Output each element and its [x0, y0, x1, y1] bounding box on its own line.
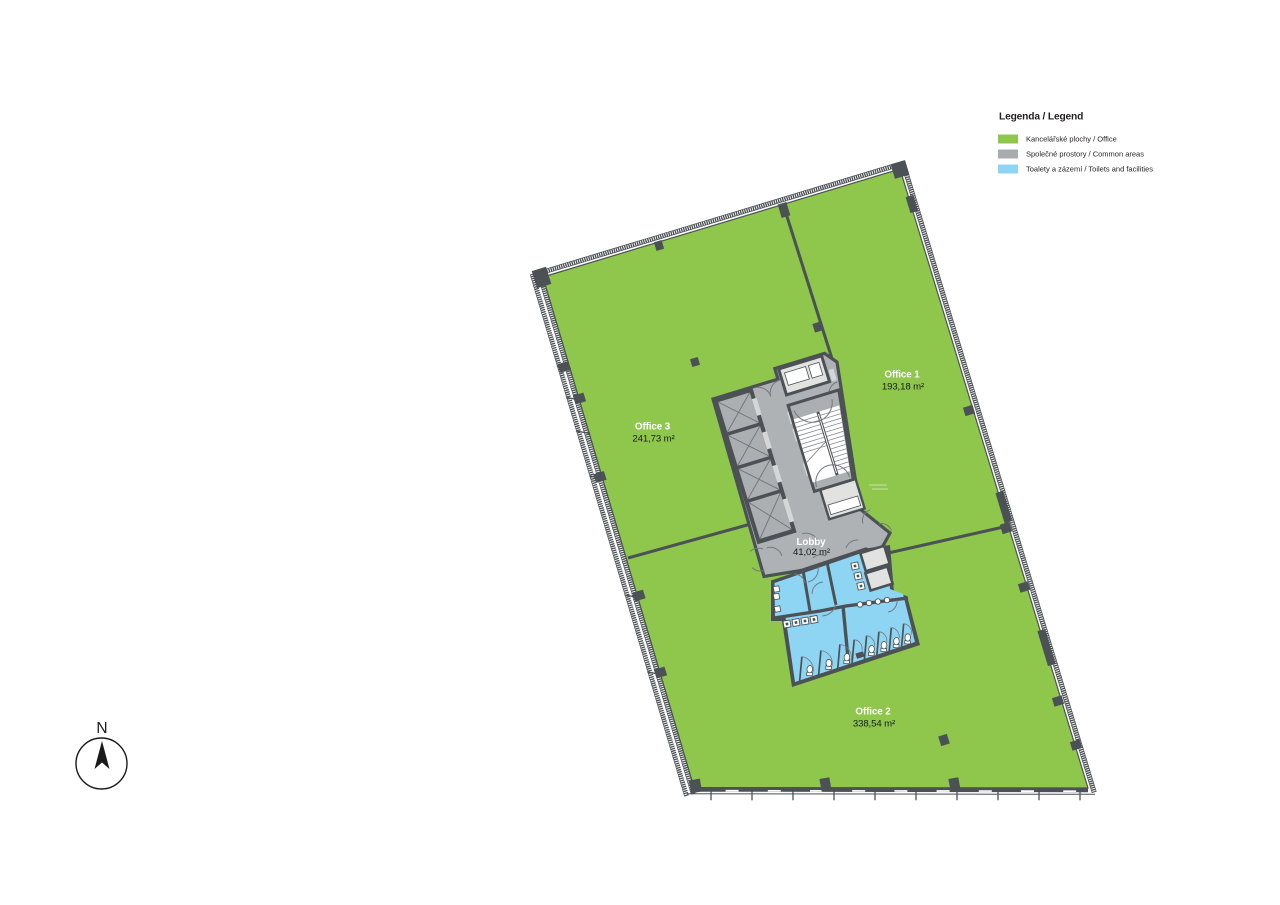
svg-text:41,02 m²: 41,02 m²: [793, 547, 831, 558]
svg-text:Office 1: Office 1: [884, 370, 920, 381]
svg-text:N: N: [96, 720, 107, 737]
svg-text:193,18 m²: 193,18 m²: [882, 382, 925, 393]
svg-text:Legenda / Legend: Legenda / Legend: [999, 112, 1083, 123]
svg-text:241,73 m²: 241,73 m²: [632, 434, 675, 445]
svg-text:Office 2: Office 2: [855, 707, 891, 718]
svg-text:Office 3: Office 3: [635, 422, 671, 433]
svg-text:338,54 m²: 338,54 m²: [853, 719, 896, 730]
svg-text:Kancelářské plochy / Office: Kancelářské plochy / Office: [1026, 135, 1117, 144]
svg-text:Společné prostory / Common are: Společné prostory / Common areas: [1026, 150, 1144, 159]
svg-text:Toalety a zázemí / Toilets and: Toalety a zázemí / Toilets and facilitie…: [1026, 165, 1153, 174]
